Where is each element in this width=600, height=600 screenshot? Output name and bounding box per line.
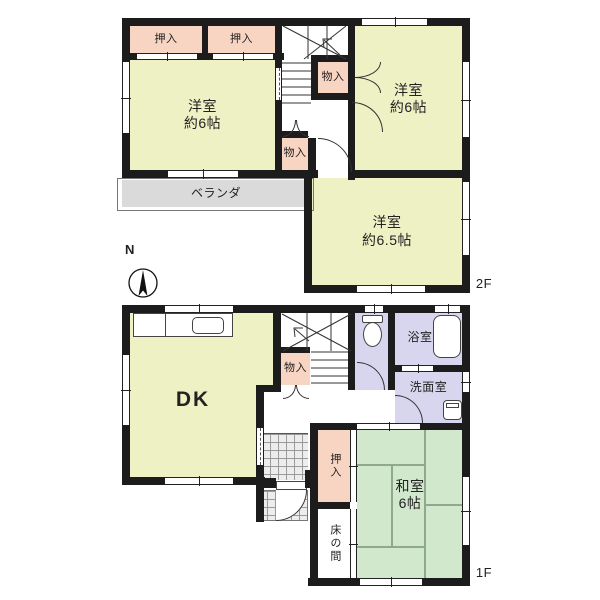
tokonoma-label: 床の間 <box>318 509 350 578</box>
floor1-label: 1F <box>470 565 498 581</box>
window <box>122 355 130 425</box>
wall <box>348 18 355 180</box>
sliding-door <box>276 68 281 100</box>
room-dk-label: DK <box>130 375 256 425</box>
window <box>122 62 130 133</box>
entrance-door-panel <box>276 481 307 490</box>
tokonoma-edge <box>350 509 357 578</box>
window <box>435 305 460 313</box>
window <box>462 182 470 255</box>
counter-divider <box>165 314 166 336</box>
oshiire-sliding-door <box>350 430 357 502</box>
room-yoshitsu-65-label: 洋室約6.5帖 <box>312 178 462 285</box>
wall <box>388 305 395 390</box>
dk-sliding-door <box>257 428 263 465</box>
wall <box>312 502 350 509</box>
room-washitsu-label: 和室6帖 <box>357 430 463 560</box>
closet-oshiire-2-label: 押入 <box>208 26 275 53</box>
compass-icon <box>128 266 160 300</box>
washbasin-detail <box>446 403 459 408</box>
window <box>360 578 422 586</box>
closet-sliding-door <box>137 53 197 60</box>
room-yoshitsu-left-label: 洋室約6帖 <box>130 60 275 170</box>
room-dk-area2 <box>256 313 273 385</box>
window <box>362 18 427 26</box>
window <box>165 305 233 313</box>
window-veranda-door <box>168 170 238 178</box>
storage-monoire-upper-label: 物入 <box>314 62 352 93</box>
bathroom-label: 浴室 <box>395 328 445 346</box>
veranda-label: ベランダ <box>122 180 310 207</box>
wall <box>273 305 281 352</box>
floor2-label: 2F <box>470 276 498 292</box>
window <box>462 62 470 137</box>
genkan-tile <box>262 433 308 480</box>
storage-monoire-1f-label: 物入 <box>278 353 313 385</box>
window <box>165 477 233 485</box>
wall <box>305 470 318 488</box>
washitsu-sliding-door <box>357 423 420 430</box>
window <box>462 477 470 545</box>
bath-sliding-door <box>402 365 433 372</box>
closet-oshiire-1f-label: 押入 <box>318 430 350 502</box>
compass-north-label: N <box>120 242 140 258</box>
toilet-bowl <box>363 322 382 347</box>
room-yoshitsu-right-label: 洋室約6帖 <box>355 26 462 172</box>
wall <box>256 478 276 488</box>
window <box>357 285 425 293</box>
door-arc <box>318 138 352 172</box>
window <box>365 305 383 313</box>
washroom-label: 洗面室 <box>395 378 462 396</box>
kitchen-sink <box>192 317 224 334</box>
window <box>462 372 470 392</box>
closet-sliding-door <box>213 53 273 60</box>
storage-monoire-lower-label: 物入 <box>280 138 310 170</box>
closet-oshiire-1-label: 押入 <box>130 26 202 53</box>
floor-plan: 押入 押入 洋室約6帖 洋室約6帖 洋室約6.5帖 物入 物入 ベランダ 2F … <box>0 0 600 600</box>
